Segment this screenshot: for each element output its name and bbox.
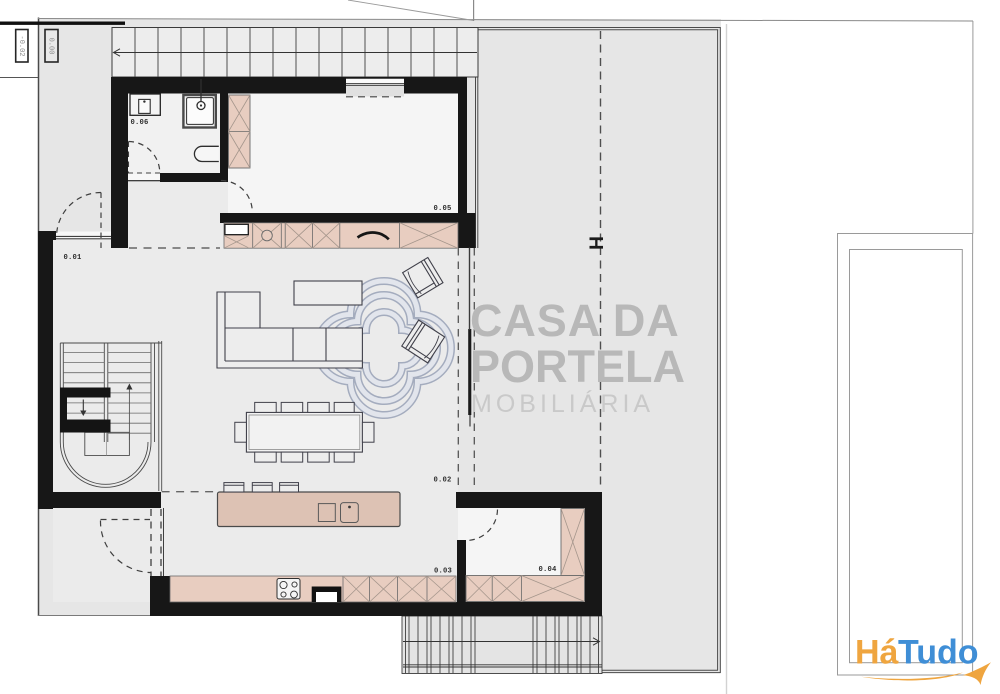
svg-text:CASA DA: CASA DA — [470, 295, 680, 346]
svg-text:0.05: 0.05 — [434, 205, 452, 213]
svg-text:Há: Há — [855, 634, 899, 672]
svg-text:PORTELA: PORTELA — [470, 341, 685, 392]
svg-text:Tudo: Tudo — [898, 634, 979, 672]
svg-text:0.04: 0.04 — [539, 566, 558, 574]
svg-text:-0.02: -0.02 — [17, 35, 25, 56]
svg-text:H: H — [585, 236, 606, 250]
svg-text:0.01: 0.01 — [64, 254, 83, 262]
svg-text:0.06: 0.06 — [131, 119, 149, 127]
svg-text:MOBILIÁRIA: MOBILIÁRIA — [471, 389, 654, 418]
svg-text:0.03: 0.03 — [434, 568, 452, 576]
svg-text:0.00: 0.00 — [47, 38, 55, 55]
svg-text:0.02: 0.02 — [434, 477, 452, 485]
